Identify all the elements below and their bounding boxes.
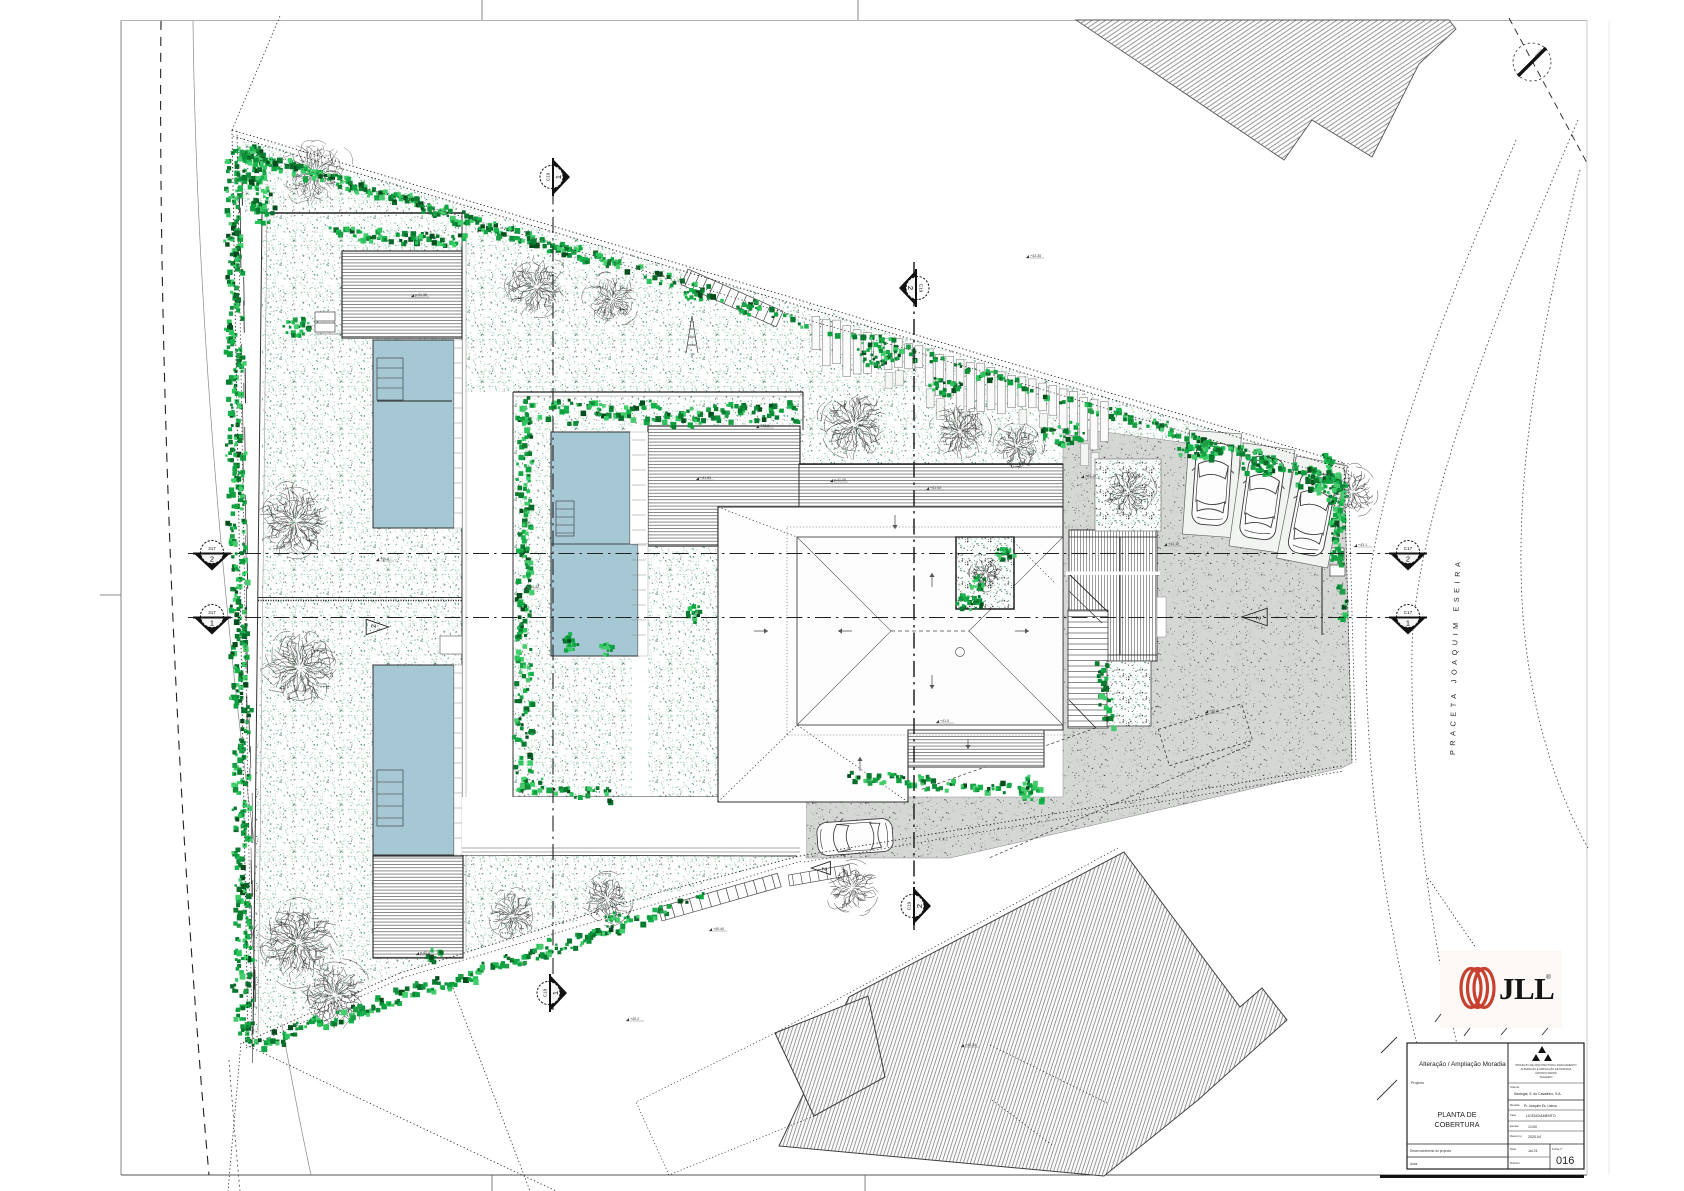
svg-text:Fase: Fase — [1510, 1113, 1517, 1117]
svg-text:2020.04: 2020.04 — [1528, 1135, 1541, 1139]
svg-text:+43.1: +43.1 — [1358, 543, 1367, 547]
svg-text:Pr. Joaquim Es. Lisboa: Pr. Joaquim Es. Lisboa — [1524, 1104, 1557, 1108]
svg-text:+41.0: +41.0 — [940, 719, 949, 723]
svg-text:Cliente: Cliente — [1510, 1085, 1520, 1089]
svg-text:ANTONIO PEDRO: ANTONIO PEDRO — [1535, 1071, 1557, 1075]
svg-text:TELHEIRO: TELHEIRO — [1540, 1075, 1553, 1079]
svg-text:+42.34: +42.34 — [965, 1043, 976, 1047]
svg-text:+40.4: +40.4 — [380, 557, 389, 561]
svg-text:PROJECTO DE ARQUITECTURA LICEN: PROJECTO DE ARQUITECTURA LICENCIAMENTO — [1515, 1063, 1576, 1067]
svg-text:Data proj.: Data proj. — [1510, 1134, 1522, 1138]
svg-text:Desenvolvimento do projecto: Desenvolvimento do projecto — [1410, 1149, 1451, 1153]
svg-text:+40.2: +40.2 — [630, 1017, 639, 1021]
svg-text:2: 2 — [1254, 616, 1261, 620]
svg-text:+41.10: +41.10 — [1168, 542, 1179, 546]
svg-text:1: 1 — [1406, 619, 1410, 628]
svg-text:+40.40: +40.40 — [713, 927, 724, 931]
svg-text:Morada: Morada — [1510, 1103, 1520, 1107]
svg-text:C17: C17 — [1404, 610, 1413, 615]
svg-text:+42.4: +42.4 — [1209, 709, 1218, 713]
svg-text:Rubrica: Rubrica — [1510, 1161, 1520, 1165]
svg-text:1/100: 1/100 — [1528, 1125, 1537, 1129]
svg-text:1: 1 — [551, 991, 560, 995]
svg-text:016: 016 — [1556, 1155, 1574, 1167]
svg-text:p.41.35: p.41.35 — [415, 293, 427, 297]
svg-text:+41.6: +41.6 — [760, 424, 769, 428]
svg-text:+41.05: +41.05 — [930, 486, 941, 490]
svg-text:®: ® — [1546, 973, 1551, 981]
svg-text:C19: C19 — [543, 988, 548, 997]
svg-text:Alteração / Ampliação Moradia: Alteração / Ampliação Moradia — [1419, 1061, 1506, 1068]
svg-text:C19: C19 — [546, 172, 551, 181]
svg-text:2: 2 — [1406, 555, 1410, 564]
svg-text:+41.10: +41.10 — [1085, 474, 1096, 478]
svg-text:317: 317 — [208, 546, 216, 551]
svg-text:C17: C17 — [1404, 546, 1413, 551]
svg-text:Data: Data — [1510, 1147, 1516, 1151]
svg-text:Santogal, S. do Cavalinho, S.A: Santogal, S. do Cavalinho, S.A. — [1514, 1092, 1562, 1096]
svg-text:Projecto: Projecto — [1411, 1081, 1424, 1085]
svg-text:317: 317 — [208, 610, 216, 615]
svg-text:+43.35: +43.35 — [1030, 254, 1041, 258]
svg-text:2: 2 — [820, 867, 827, 871]
svg-text:C19: C19 — [919, 284, 924, 293]
svg-text:Autor: Autor — [1410, 1162, 1419, 1166]
svg-text:Folha nº: Folha nº — [1552, 1147, 1562, 1151]
svg-text:C19: C19 — [907, 901, 912, 910]
svg-text:2: 2 — [906, 286, 915, 290]
svg-text:+40.42: +40.42 — [528, 585, 539, 589]
svg-text:+41.65: +41.65 — [700, 476, 711, 480]
svg-text:LICENCIAMENTO: LICENCIAMENTO — [1526, 1114, 1556, 1118]
svg-text:2: 2 — [371, 624, 378, 628]
svg-text:COBERTURA: COBERTURA — [1435, 1120, 1480, 1129]
svg-text:p.40.4: p.40.4 — [420, 951, 430, 955]
svg-text:Escala: Escala — [1510, 1124, 1519, 1128]
svg-text:PLANTA DE: PLANTA DE — [1437, 1110, 1476, 1119]
svg-text:1: 1 — [210, 619, 214, 628]
svg-text:2: 2 — [210, 555, 214, 564]
svg-text:2: 2 — [915, 904, 924, 908]
svg-text:p.41.05: p.41.05 — [834, 478, 846, 482]
svg-text:Jul 21: Jul 21 — [1528, 1149, 1538, 1153]
svg-text:1: 1 — [554, 175, 563, 179]
